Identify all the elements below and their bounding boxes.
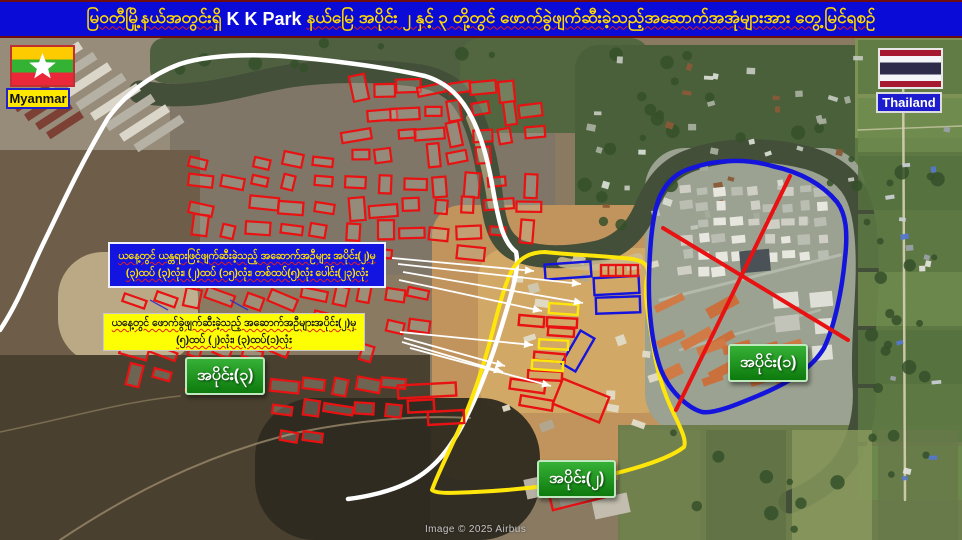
myanmar-flag <box>10 45 75 87</box>
machinery-demolition-callout: ယနေ့တွင် ယန္တရားဖြင့်ဖျက်ဆီးခဲ့သည့် အဆော… <box>108 242 386 288</box>
region-label-section3: အပိုင်း(၃) <box>185 357 265 395</box>
thailand-label: Thailand <box>876 92 942 113</box>
yellow-callout-line2: (၅)ထပ် (၂)လုံး၊ (၃)ထပ်(၁)လုံး <box>104 332 364 349</box>
myanmar-label: Myanmar <box>6 88 70 109</box>
title-bar: မြဝတီမြို့နယ်အတွင်းရှိ K K Park နယ်မြေ အ… <box>0 0 962 38</box>
title-part-1: မြဝတီမြို့နယ်အတွင်းရှိ <box>87 7 222 32</box>
region-label-section2: အပိုင်း(၂) <box>537 460 616 498</box>
slide: မြဝတီမြို့နယ်အတွင်းရှိ K K Park နယ်မြေ အ… <box>0 0 962 540</box>
blue-callout-line2: (၃)ထပ် (၃)လုံး၊ (၂)ထပ် (၁၅)လုံး၊ တစ်ထပ်(… <box>110 265 384 282</box>
blue-callout-line1: ယနေ့တွင် ယန္တရားဖြင့်ဖျက်ဆီးခဲ့သည့် အဆော… <box>110 248 384 265</box>
map-attribution: Image © 2025 Airbus <box>425 524 526 535</box>
thailand-flag <box>878 48 943 89</box>
explosive-demolition-callout: ယနေ့တွင် ဖောက်ခွဲဖျက်ဆီးခဲ့သည့် အဆောက်အဦ… <box>103 313 365 351</box>
title-kkpark: K K Park <box>222 9 307 30</box>
myanmar-flag-star <box>12 47 73 85</box>
region-label-section1: အပိုင်း(၁) <box>728 344 808 382</box>
title-part-3: နယ်မြေ အပိုင်း ၂ နှင့် ၃ တို့တွင် ဖောက်ခ… <box>307 7 876 32</box>
yellow-callout-line1: ယနေ့တွင် ဖောက်ခွဲဖျက်ဆီးခဲ့သည့် အဆောက်အဦ… <box>104 315 364 332</box>
